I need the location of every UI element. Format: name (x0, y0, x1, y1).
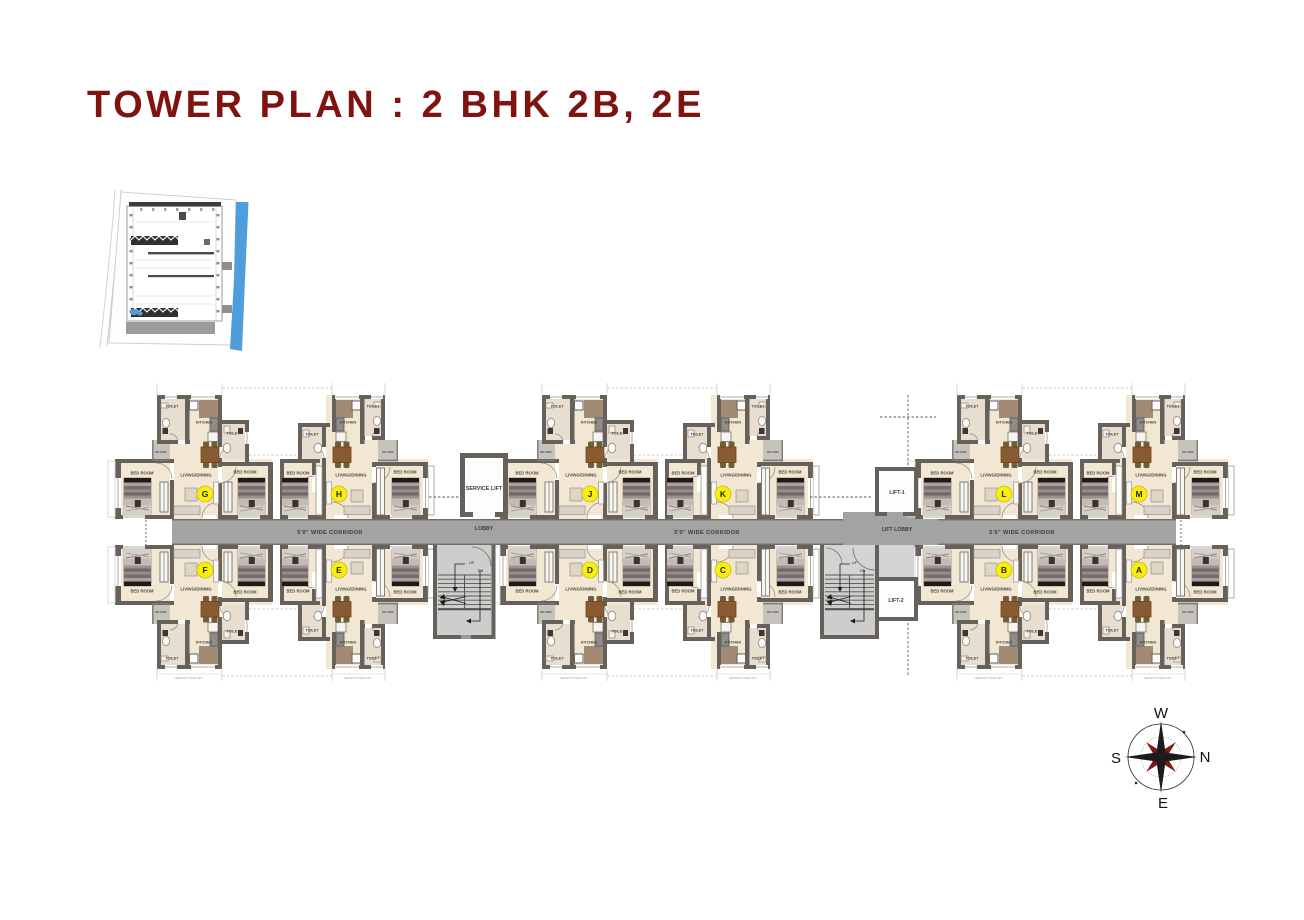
svg-text:BALCONY: BALCONY (955, 451, 967, 454)
svg-text:BED ROOM: BED ROOM (930, 470, 954, 475)
svg-text:BALCONY: BALCONY (1182, 611, 1194, 614)
svg-text:DN: DN (860, 569, 866, 573)
svg-text:LIVING/DINING: LIVING/DINING (720, 473, 752, 478)
svg-text:E: E (1158, 795, 1168, 812)
svg-text:LIVING/DINING: LIVING/DINING (980, 587, 1012, 592)
svg-text:LIVING/DINING: LIVING/DINING (180, 473, 212, 478)
svg-text:BED ROOM: BED ROOM (130, 470, 154, 475)
svg-text:SERVANT TOILET OPT: SERVANT TOILET OPT (560, 676, 588, 680)
svg-text:BED ROOM: BED ROOM (618, 589, 642, 594)
svg-text:KITCHEN: KITCHEN (996, 420, 1013, 424)
svg-text:KITCHEN: KITCHEN (581, 640, 598, 644)
svg-text:LIVING/DINING: LIVING/DINING (565, 473, 597, 478)
svg-text:BED ROOM: BED ROOM (618, 469, 642, 474)
svg-text:TOILET: TOILET (305, 628, 319, 632)
svg-text:BED ROOM: BED ROOM (515, 470, 539, 475)
svg-text:LIVING/DINING: LIVING/DINING (1135, 587, 1167, 592)
svg-text:TOILET: TOILET (1105, 432, 1119, 436)
svg-text:BALCONY: BALCONY (382, 611, 394, 614)
svg-text:W: W (1154, 705, 1169, 722)
svg-text:LOBBY: LOBBY (475, 526, 494, 532)
svg-text:BED ROOM: BED ROOM (393, 469, 417, 474)
svg-text:E: E (336, 565, 342, 575)
svg-text:KITCHEN: KITCHEN (340, 420, 357, 424)
svg-text:S: S (1111, 750, 1121, 767)
svg-text:TOILET: TOILET (165, 404, 179, 408)
svg-text:LIVING/DINING: LIVING/DINING (1135, 473, 1167, 478)
svg-text:C: C (720, 565, 726, 575)
svg-text:BALCONY: BALCONY (382, 451, 394, 454)
svg-text:J: J (588, 489, 593, 499)
svg-text:LIVING/DINING: LIVING/DINING (335, 587, 367, 592)
svg-text:BED ROOM: BED ROOM (286, 470, 310, 475)
svg-text:SERVANT TOILET OPT: SERVANT TOILET OPT (1144, 676, 1172, 680)
svg-text:BED ROOM: BED ROOM (671, 588, 695, 593)
svg-text:BED ROOM: BED ROOM (130, 588, 154, 593)
svg-text:LIFT-2: LIFT-2 (888, 598, 903, 604)
svg-text:LIVING/DINING: LIVING/DINING (180, 587, 212, 592)
svg-text:BED ROOM: BED ROOM (286, 588, 310, 593)
svg-text:TOILET: TOILET (965, 404, 979, 408)
svg-text:SERVANT TOILET OPT: SERVANT TOILET OPT (729, 676, 757, 680)
svg-text:K: K (720, 489, 727, 499)
svg-text:KITCHEN: KITCHEN (996, 640, 1013, 644)
svg-text:TOILET: TOILET (165, 656, 179, 660)
svg-text:KITCHEN: KITCHEN (1140, 420, 1157, 424)
svg-text:LIVING/DINING: LIVING/DINING (720, 587, 752, 592)
svg-text:KITCHEN: KITCHEN (725, 640, 742, 644)
svg-text:TOILET: TOILET (550, 656, 564, 660)
svg-text:BALCONY: BALCONY (155, 611, 167, 614)
svg-text:TOILET: TOILET (366, 656, 380, 660)
svg-text:BED ROOM: BED ROOM (1086, 470, 1110, 475)
svg-text:BED ROOM: BED ROOM (393, 589, 417, 594)
svg-text:B: B (1001, 565, 1007, 575)
svg-text:TOILET: TOILET (611, 431, 625, 435)
svg-text:BALCONY: BALCONY (540, 611, 552, 614)
svg-text:D: D (587, 565, 593, 575)
svg-text:5'6" WIDE CORRIDOR: 5'6" WIDE CORRIDOR (989, 530, 1055, 536)
svg-text:TOILET: TOILET (226, 629, 240, 633)
svg-text:5'0" WIDE CORRIDOR: 5'0" WIDE CORRIDOR (674, 530, 740, 536)
svg-text:5'0" WIDE CORRIDOR: 5'0" WIDE CORRIDOR (297, 530, 363, 536)
svg-text:TOILET: TOILET (550, 404, 564, 408)
svg-text:LIFT LOBBY: LIFT LOBBY (882, 527, 913, 533)
svg-text:BED ROOM: BED ROOM (930, 588, 954, 593)
svg-text:UP: UP (469, 561, 475, 565)
svg-text:H: H (336, 489, 342, 499)
svg-text:TOILET: TOILET (1166, 404, 1180, 408)
svg-text:TOILET: TOILET (751, 404, 765, 408)
svg-text:BALCONY: BALCONY (767, 451, 779, 454)
svg-text:TOILET: TOILET (1105, 628, 1119, 632)
svg-text:KITCHEN: KITCHEN (196, 420, 213, 424)
svg-text:SERVICE LIFT: SERVICE LIFT (466, 486, 503, 492)
svg-text:BED ROOM: BED ROOM (233, 589, 257, 594)
svg-text:KITCHEN: KITCHEN (196, 640, 213, 644)
svg-text:TOILET: TOILET (226, 431, 240, 435)
svg-text:BALCONY: BALCONY (155, 451, 167, 454)
svg-text:TOILET: TOILET (611, 629, 625, 633)
svg-text:BED ROOM: BED ROOM (1033, 469, 1057, 474)
svg-text:TOILET: TOILET (1026, 629, 1040, 633)
svg-text:KITCHEN: KITCHEN (1140, 640, 1157, 644)
svg-text:BED ROOM: BED ROOM (671, 470, 695, 475)
svg-text:TOILET: TOILET (366, 404, 380, 408)
svg-text:N: N (1200, 749, 1211, 766)
svg-text:G: G (202, 489, 209, 499)
svg-text:BED ROOM: BED ROOM (515, 588, 539, 593)
svg-text:LIVING/DINING: LIVING/DINING (980, 473, 1012, 478)
svg-text:UP: UP (852, 561, 858, 565)
svg-text:SERVANT TOILET OPT: SERVANT TOILET OPT (975, 676, 1003, 680)
svg-text:BED ROOM: BED ROOM (1193, 469, 1217, 474)
svg-text:TOILET: TOILET (1166, 656, 1180, 660)
svg-text:LIVING/DINING: LIVING/DINING (335, 473, 367, 478)
svg-text:F: F (202, 565, 207, 575)
svg-text:TOILET: TOILET (965, 656, 979, 660)
svg-text:SERVANT TOILET OPT: SERVANT TOILET OPT (175, 676, 203, 680)
svg-text:KITCHEN: KITCHEN (581, 420, 598, 424)
svg-text:BED ROOM: BED ROOM (233, 469, 257, 474)
svg-text:DN: DN (478, 569, 484, 573)
svg-text:A: A (1136, 565, 1142, 575)
svg-text:M: M (1135, 489, 1142, 499)
svg-text:BALCONY: BALCONY (767, 611, 779, 614)
svg-text:L: L (1001, 489, 1006, 499)
svg-text:BED ROOM: BED ROOM (1193, 589, 1217, 594)
svg-text:BALCONY: BALCONY (540, 451, 552, 454)
svg-text:BALCONY: BALCONY (1182, 451, 1194, 454)
svg-text:LIVING/DINING: LIVING/DINING (565, 587, 597, 592)
svg-text:KITCHEN: KITCHEN (340, 640, 357, 644)
svg-text:TOILET: TOILET (751, 656, 765, 660)
svg-text:TOWER PLAN : 2 BHK 2B, 2E: TOWER PLAN : 2 BHK 2B, 2E (87, 84, 705, 126)
svg-text:TOILET: TOILET (690, 432, 704, 436)
svg-text:BED ROOM: BED ROOM (778, 589, 802, 594)
svg-text:TOILET: TOILET (305, 432, 319, 436)
svg-text:BALCONY: BALCONY (955, 611, 967, 614)
svg-text:TOILET: TOILET (1026, 431, 1040, 435)
svg-text:KITCHEN: KITCHEN (725, 420, 742, 424)
svg-text:BED ROOM: BED ROOM (1033, 589, 1057, 594)
svg-text:LIFT-1: LIFT-1 (889, 490, 904, 496)
svg-text:BED ROOM: BED ROOM (778, 469, 802, 474)
svg-text:BED ROOM: BED ROOM (1086, 588, 1110, 593)
svg-text:SERVANT TOILET OPT: SERVANT TOILET OPT (344, 676, 372, 680)
svg-text:TOILET: TOILET (690, 628, 704, 632)
